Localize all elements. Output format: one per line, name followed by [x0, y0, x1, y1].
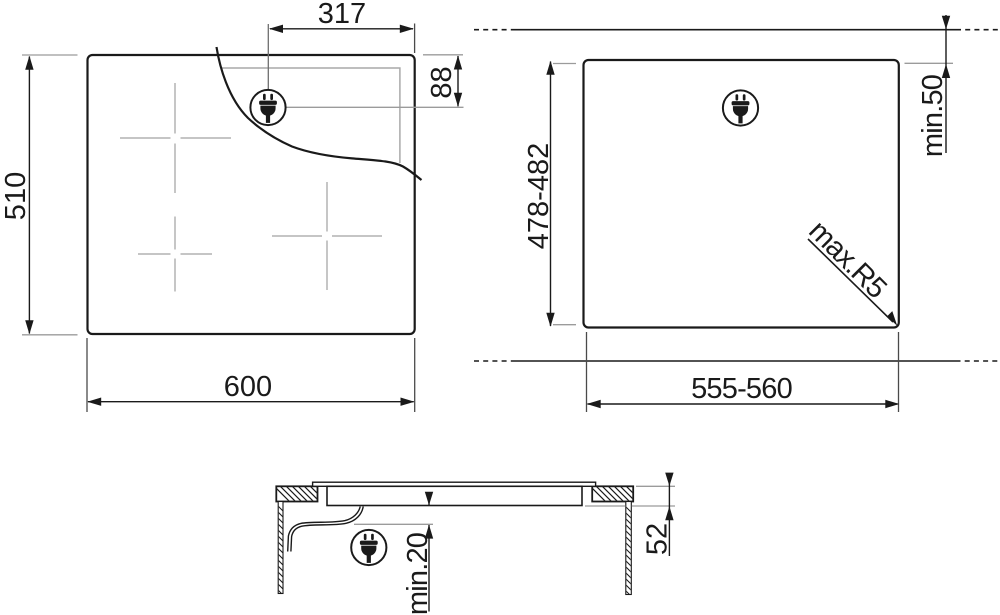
svg-text:510: 510 — [0, 172, 32, 220]
svg-text:52: 52 — [642, 523, 674, 555]
svg-text:min.50: min.50 — [917, 75, 949, 157]
svg-text:478-482: 478-482 — [523, 143, 555, 249]
svg-text:555-560: 555-560 — [691, 373, 792, 405]
svg-text:600: 600 — [224, 371, 272, 403]
svg-text:min.20: min.20 — [402, 533, 434, 615]
svg-text:88: 88 — [426, 66, 458, 98]
svg-text:317: 317 — [318, 0, 366, 30]
